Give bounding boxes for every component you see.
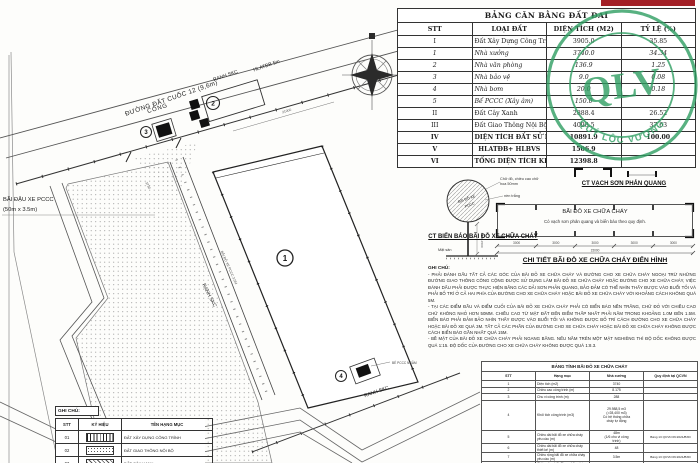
row-item: Khối tích công trình (m3)	[536, 400, 590, 430]
land-col-area: DIỆN TÍCH (M2)	[547, 23, 622, 36]
compass-rose	[342, 33, 402, 110]
fire-sign-detail: BÃI ĐỖ XE PCCC 1000÷1500	[446, 180, 503, 259]
parking-seg-dim-4: 3000	[631, 241, 638, 245]
pump-label: BỂ PCCC NGẦM	[392, 360, 417, 365]
row-name: Đất Giao Thông Nội Bộ+ Đất Trống	[472, 120, 547, 132]
table-row: IĐất Xây Dựng Công Trình3905.035.85	[398, 36, 696, 48]
row-value: 3.5m	[590, 452, 644, 461]
row-ratio	[621, 96, 696, 108]
row-name: DIỆN TÍCH ĐẤT SỬ DỤNG	[472, 132, 547, 144]
legend-no: 01	[56, 431, 79, 444]
table-row: 5Bể PCCC (Xây âm)150.0	[398, 96, 696, 108]
paint-detail-caption: CT VẠCH SƠN PHẢN QUANG	[552, 181, 696, 187]
fire-parking-calc-table: BẢNG TÍNH BÃI ĐỖ XE CHỮA CHÁY STT Hạng m…	[481, 361, 698, 463]
table-row: IVDIỆN TÍCH ĐẤT SỬ DỤNG10891.9100.00	[398, 132, 696, 144]
sign-detail-caption: CT BIỂN BÁO BÃI ĐỖ XE CHỮA CHÁY	[412, 234, 554, 240]
row-name: Nhà xưởng	[472, 48, 547, 60]
land-col-ratio: TỶ LỆ (%)	[621, 23, 696, 36]
table-row: 3Nhà bảo vệ9.00.08	[398, 72, 696, 84]
row-no: 4	[398, 84, 473, 96]
row-area: 3905.0	[547, 36, 622, 48]
row-name: TỔNG DIỆN TÍCH KHU ĐẤT	[472, 156, 547, 168]
parking-seg-dim-3: 3000	[591, 241, 598, 245]
table-row: 4Nhà bơm20.00.18	[398, 84, 696, 96]
calc-col-item: Hạng mục	[536, 372, 590, 381]
note-item: - BỀ MẶT CỦA BÃI ĐỖ XE CHỮA CHÁY PHẢI NG…	[428, 336, 696, 349]
land-balance-table: BẢNG CÂN BẰNG ĐẤT ĐAI STT LOẠI ĐẤT DIỆN …	[397, 8, 696, 168]
land-col-type: LOẠI ĐẤT	[472, 23, 547, 36]
row-area: 9.0	[547, 72, 622, 84]
parking-bay-line1: BÃI ĐỖ XE CHỮA CHÁY	[497, 209, 693, 215]
note-item: - TẠI CÁC ĐIỂM ĐẦU VÀ ĐIỂM CUỐI CỦA BÃI …	[428, 304, 696, 336]
row-ratio: 35.85	[621, 36, 696, 48]
row-name: Nhà bảo vệ	[472, 72, 547, 84]
calc-col-stt: STT	[482, 372, 536, 381]
row-no: I	[398, 36, 473, 48]
row-value: 29.988,5 m3 (>28,400 m3) Có hệ thống chữ…	[590, 400, 644, 430]
legend-symbol-diag	[79, 457, 122, 463]
row-no: VI	[398, 156, 473, 168]
row-area: 20.0	[547, 84, 622, 96]
road-label: ĐƯỜNG ĐẤT CUỐC 12 (9,6m)	[123, 77, 219, 118]
row-name: Nhà bơm	[472, 84, 547, 96]
note-item: - PHẢI ĐÁNH DẤU TẤT CẢ CÁC GÓC CỦA BÃI Đ…	[428, 272, 696, 304]
notes-block: GHI CHÚ: - PHẢI ĐÁNH DẤU TẤT CẢ CÁC GÓC …	[428, 266, 696, 349]
row-ref: Bảng 13 QCVN 06:2021/BXD	[644, 430, 698, 443]
row-value: 48	[590, 443, 644, 452]
row-no: 7	[482, 452, 536, 461]
row-ratio	[621, 144, 696, 156]
row-no: 6	[482, 443, 536, 452]
parking-seg-dim-2: 3000	[552, 241, 559, 245]
sign-note-bg: nền trắng	[504, 194, 520, 198]
land-table-title: BẢNG CÂN BẰNG ĐẤT ĐAI	[398, 9, 696, 23]
legend-col-name: TÊN HẠNG MỤC	[122, 419, 213, 431]
legend-col-stt: STT	[56, 419, 79, 431]
row-name: Bể PCCC (Xây âm)	[472, 96, 547, 108]
table-row: 6Chiều dài bãi đỗ xe chữa cháy thiết kế …	[482, 443, 698, 452]
row-no: 4	[482, 400, 536, 430]
table-row: IIĐất Cây Xanh2888.426.52	[398, 108, 696, 120]
row-no: 5	[482, 430, 536, 443]
legend-row: 01 ĐẤT XÂY DỰNG CÔNG TRÌNH	[56, 431, 213, 444]
parking-bay-line2: Có vạch sơn phản quang và biển báo theo …	[497, 219, 693, 224]
row-name: Đất Cây Xanh	[472, 108, 547, 120]
row-ratio: 1.25	[621, 60, 696, 72]
plot-number-3: 3	[144, 130, 148, 136]
row-ref	[644, 400, 698, 430]
table-row: VITỔNG DIỆN TÍCH KHU ĐẤT12398.8	[398, 156, 696, 168]
row-item: Chiều rộng bãi đỗ xe chữa cháy yêu cầu (…	[536, 452, 590, 461]
legend-row: 02 ĐẤT GIAO THÔNG NỘI BỘ	[56, 444, 213, 457]
parking-seg-dim-5: 3000	[670, 241, 677, 245]
legend-no: 03	[56, 457, 79, 463]
row-area: 2888.4	[547, 108, 622, 120]
row-area: 12398.8	[547, 156, 622, 168]
legend-name: ĐẤT XÂY DỰNG CÔNG TRÌNH	[122, 431, 213, 444]
row-name: Nhà văn phòng	[472, 60, 547, 72]
legend-table: STT KÝ HIỆU TÊN HẠNG MỤC 01 ĐẤT XÂY DỰNG…	[55, 418, 205, 463]
table-row: 5Chiều dài bãi đỗ xe chữa cháy yêu cầu (…	[482, 430, 698, 443]
row-ref	[644, 443, 698, 452]
drawing-sheet: 1 2 3 4 ĐƯỜNG ĐẤT CUỐC 12 (9,6m) RANH SK…	[0, 0, 700, 463]
red-stamp-edge	[601, 0, 695, 6]
legend-name: ĐẤT GIAO THÔNG NỘI BỘ	[122, 444, 213, 457]
row-name: Đất Xây Dựng Công Trình	[472, 36, 547, 48]
dim-21000: 21000	[282, 108, 292, 115]
row-no: II	[398, 108, 473, 120]
parking-total-dim: 15000	[591, 249, 600, 253]
row-ref: Bảng 13 QCVN 06:2021/BXD	[644, 452, 698, 461]
row-ratio: 37.63	[621, 120, 696, 132]
land-col-stt: STT	[398, 23, 473, 36]
plot-top-boundary	[16, 66, 430, 184]
row-item: Chiều dài bãi đỗ xe chữa cháy thiết kế (…	[536, 443, 590, 452]
parking-seg-dim-1: 3000	[513, 241, 520, 245]
plot-number-1: 1	[283, 254, 288, 263]
row-area: 3740.0	[547, 48, 622, 60]
row-no: 2	[398, 60, 473, 72]
row-ratio	[621, 156, 696, 168]
table-row: 2Nhà văn phòng136.91.25	[398, 60, 696, 72]
calc-table-title: BẢNG TÍNH BÃI ĐỖ XE CHỮA CHÁY	[482, 362, 698, 372]
row-no: III	[398, 120, 473, 132]
row-no: IV	[398, 132, 473, 144]
table-row: 7Chiều rộng bãi đỗ xe chữa cháy yêu cầu …	[482, 452, 698, 461]
pccc-parking-label-2: (50m x 3.5m)	[3, 207, 37, 213]
row-value: 48m (1/6 chu vi công trình)	[590, 430, 644, 443]
row-no: 3	[398, 72, 473, 84]
hlatdb-label: HLATĐB 5m	[253, 59, 281, 74]
notes-heading: GHI CHÚ:	[428, 266, 696, 271]
legend-symbol-dots	[79, 444, 122, 457]
pccc-parking-label-1: BÃI ĐẬU XE PCCC	[3, 196, 54, 203]
row-no: 1	[398, 48, 473, 60]
legend-name: ĐẤT CÂY XANH	[122, 457, 213, 463]
parking-detail-caption: CHI TIẾT BÃI ĐỖ XE CHỮA CHÁY ĐIỂN HÌNH	[497, 257, 693, 264]
calc-col-value: Nhà xưởng	[590, 372, 644, 381]
row-area: 150.0	[547, 96, 622, 108]
calc-col-ref: Quy định tại QCVN	[644, 372, 698, 381]
row-area: 136.9	[547, 60, 622, 72]
row-no: V	[398, 144, 473, 156]
sign-ground-label: Mặt sân	[438, 248, 452, 252]
table-row: IIIĐất Giao Thông Nội Bộ+ Đất Trống4098.…	[398, 120, 696, 132]
row-ratio: 34.34	[621, 48, 696, 60]
paint-detail-marks	[575, 169, 656, 177]
row-no: 5	[398, 96, 473, 108]
row-ratio: 0.18	[621, 84, 696, 96]
table-row: 4Khối tích công trình (m3)29.988,5 m3 (>…	[482, 400, 698, 430]
legend-heading: GHI CHÚ:	[55, 406, 99, 416]
legend-col-symbol: KÝ HIỆU	[79, 419, 122, 431]
row-ratio: 26.52	[621, 108, 696, 120]
building-3	[152, 118, 176, 141]
legend-no: 02	[56, 444, 79, 457]
table-row: 1Nhà xưởng3740.034.34	[398, 48, 696, 60]
row-ratio: 0.08	[621, 72, 696, 84]
row-area: 4098.5	[547, 120, 622, 132]
row-area: 1506.9	[547, 144, 622, 156]
plot-number-2: 2	[211, 101, 215, 108]
row-area: 10891.9	[547, 132, 622, 144]
legend-row: 03 ĐẤT CÂY XANH	[56, 457, 213, 463]
ranh-skc-top-label: RANH SKC	[212, 69, 239, 83]
legend-symbol-hatch	[79, 431, 122, 444]
row-ratio: 100.00	[621, 132, 696, 144]
left-boundary-lines	[9, 52, 58, 463]
row-item: Chiều dài bãi đỗ xe chữa cháy yêu cầu (m…	[536, 430, 590, 443]
row-name: HLATĐB+ HLBVS	[472, 144, 547, 156]
table-row: VHLATĐB+ HLBVS1506.9	[398, 144, 696, 156]
